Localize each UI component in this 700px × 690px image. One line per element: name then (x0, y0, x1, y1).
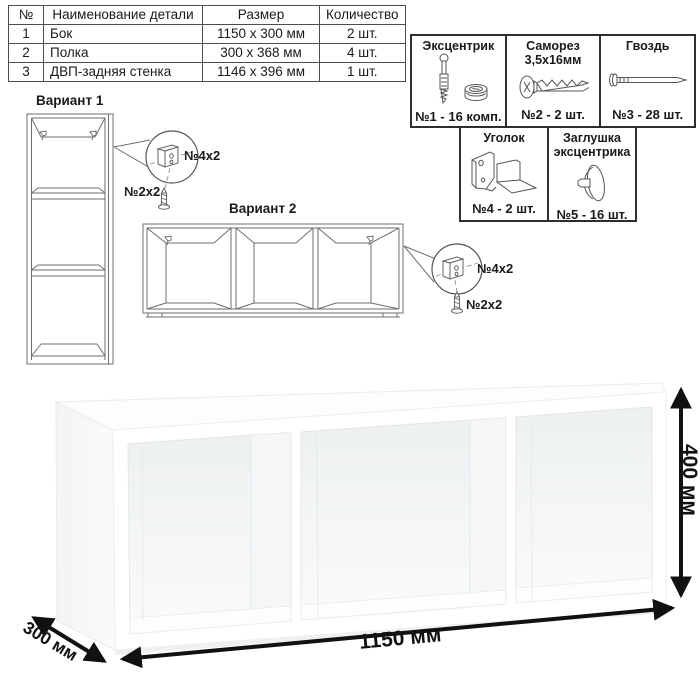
variant1-drawing (27, 114, 198, 364)
assembly-instruction-sheet: № Наименование детали Размер Количество … (0, 0, 700, 690)
drawings-layer (0, 0, 700, 690)
variant1-screw-label: №2х2 (124, 184, 160, 199)
variant2-title: Вариант 2 (229, 201, 296, 216)
variant2-bracket-label: №4х2 (477, 261, 513, 276)
height-dimension-label: 400 мм (677, 444, 700, 516)
variant2-drawing (143, 224, 482, 317)
shelf-3d-render (56, 383, 666, 655)
variant1-bracket-label: №4х2 (184, 148, 220, 163)
variant1-title: Вариант 1 (36, 93, 103, 108)
variant2-screw-label: №2х2 (466, 297, 502, 312)
